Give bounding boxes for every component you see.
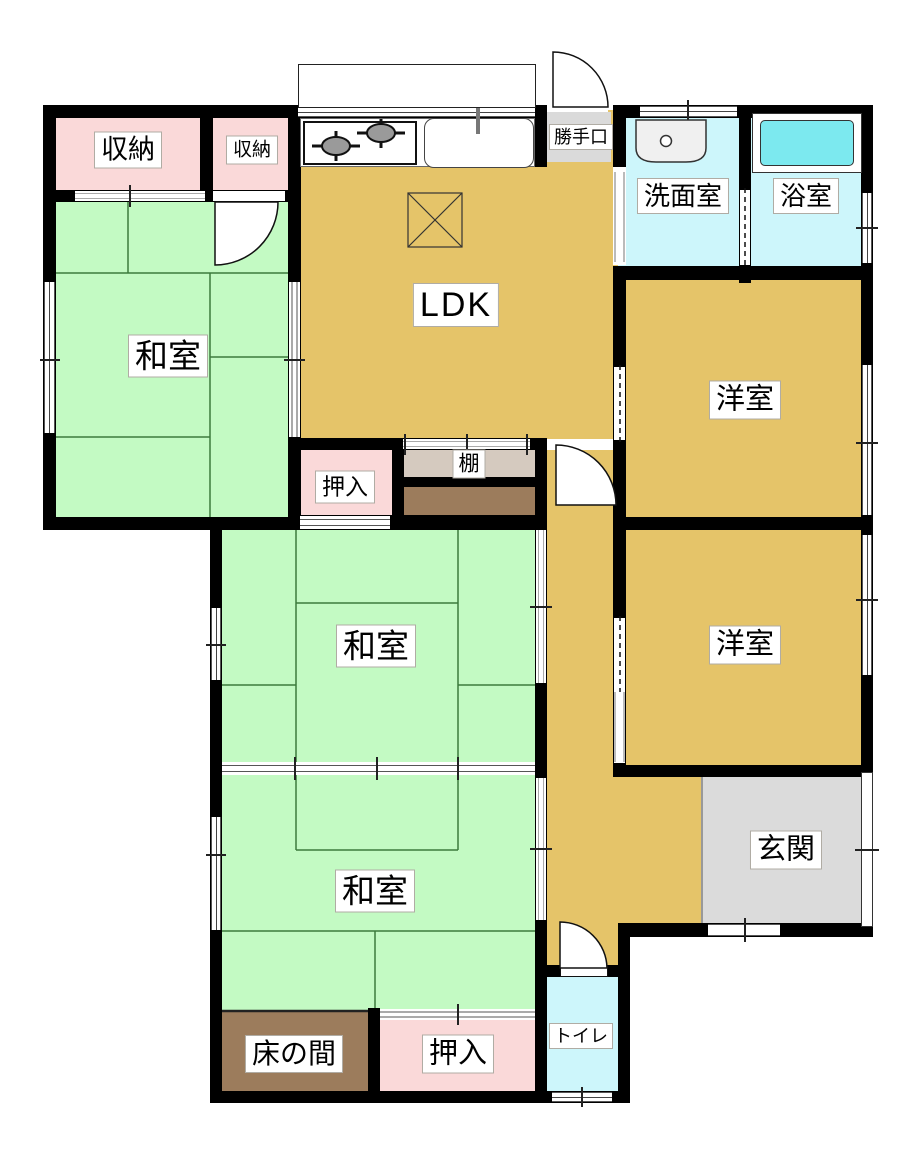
label-senmenshitsu: 洗面室 [637, 178, 729, 214]
label-shuunou-small: 収納 [226, 136, 278, 165]
door-swing-katteguchi [553, 52, 608, 107]
label-oshiire-bottom: 押入 [422, 1035, 494, 1074]
label-washitsu-middle: 和室 [336, 625, 416, 668]
label-tana: 棚 [453, 450, 486, 479]
label-ldk: LDK [413, 283, 499, 327]
door-swing-shuunou [215, 202, 278, 265]
door-swing-toilet [560, 922, 607, 968]
label-washitsu-upper: 和室 [128, 335, 208, 378]
washbasin-icon [636, 120, 706, 162]
label-yokushitsu: 浴室 [773, 178, 839, 214]
symbols-layer [0, 0, 917, 1157]
label-oshiire-middle: 押入 [315, 471, 375, 504]
label-youshitsu-lower: 洋室 [709, 626, 781, 665]
stove-burners-icon [312, 119, 405, 161]
label-genkan: 玄関 [750, 831, 822, 870]
label-tokonoma: 床の間 [245, 1035, 343, 1073]
cross-box-icon [408, 193, 462, 247]
door-swing-hall [556, 445, 616, 505]
label-katteguchi: 勝手口 [549, 124, 613, 150]
label-youshitsu-upper: 洋室 [709, 381, 781, 420]
label-washitsu-bottom: 和室 [335, 870, 415, 913]
label-shuunou-large: 収納 [94, 132, 162, 169]
floor-plan: 収納 収納 和室 LDK 勝手口 洗面室 浴室 洋室 洋室 押入 棚 和室 和室… [0, 0, 917, 1157]
label-toilet: トイレ [549, 1023, 613, 1049]
